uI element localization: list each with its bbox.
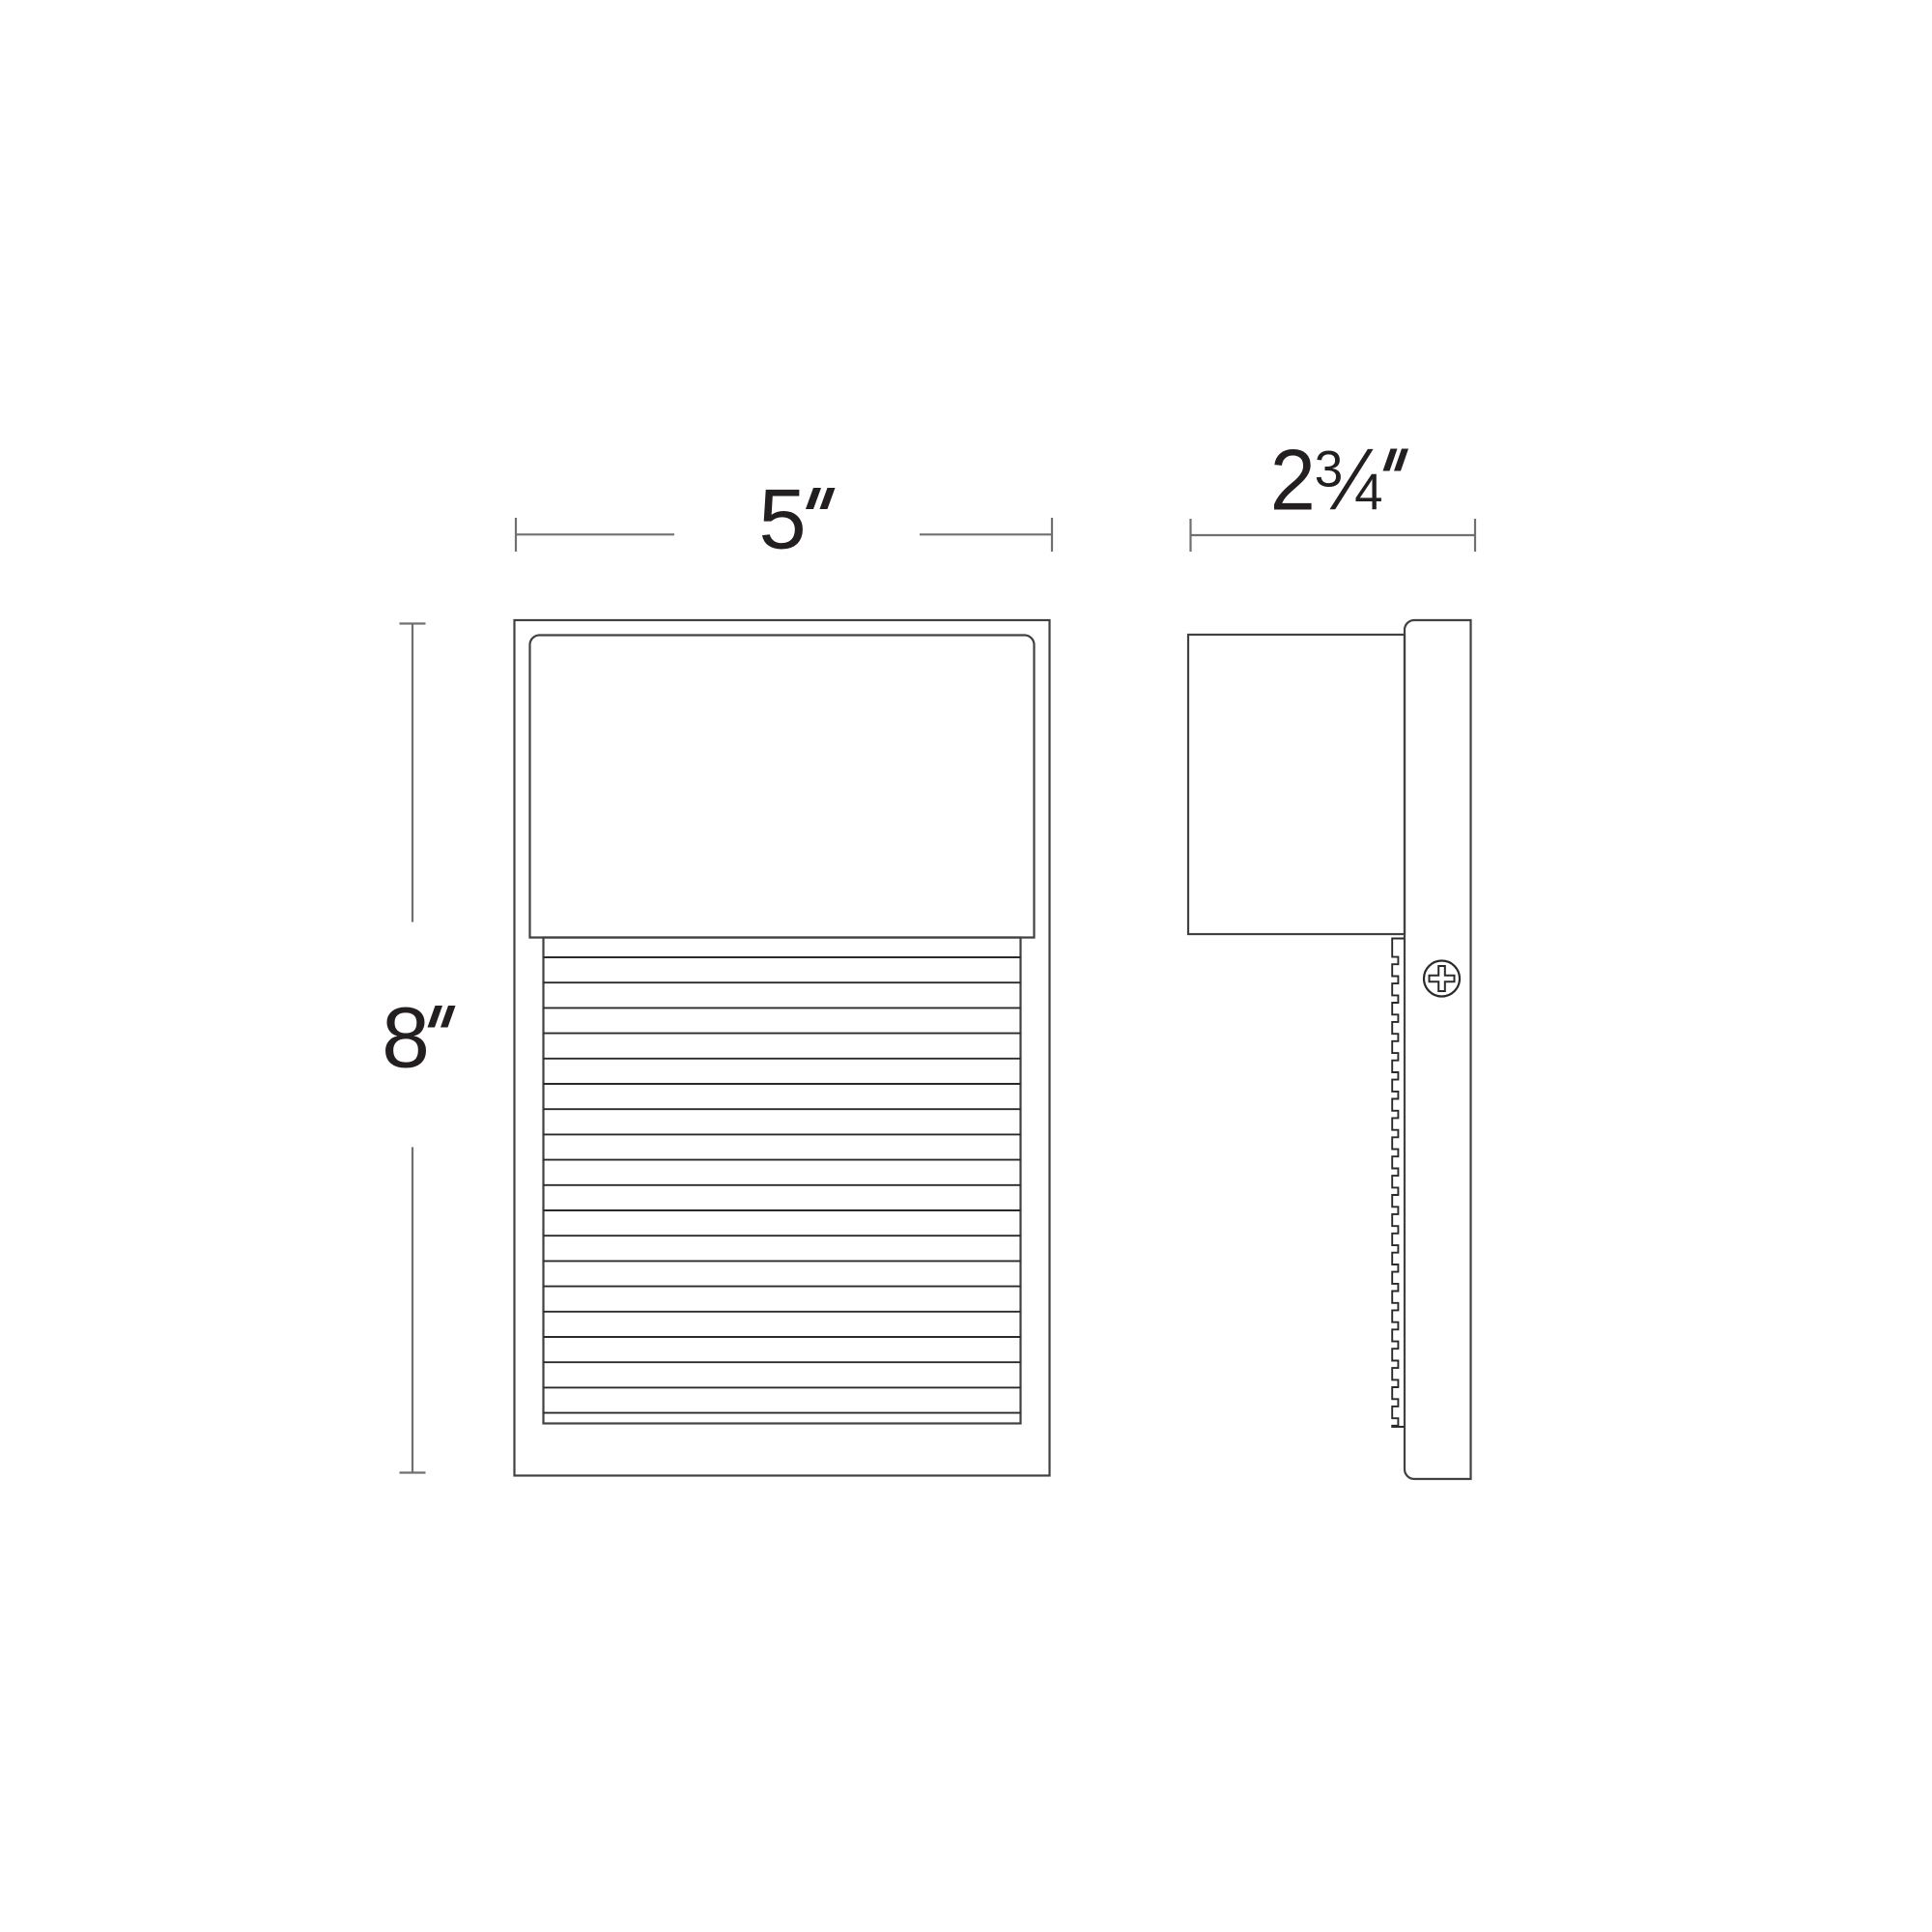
svg-text:8: 8	[382, 989, 430, 1086]
svg-text:2: 2	[1270, 431, 1316, 527]
svg-text:3: 3	[1315, 440, 1343, 497]
svg-text:5: 5	[758, 471, 806, 567]
svg-text:4: 4	[1354, 464, 1382, 521]
